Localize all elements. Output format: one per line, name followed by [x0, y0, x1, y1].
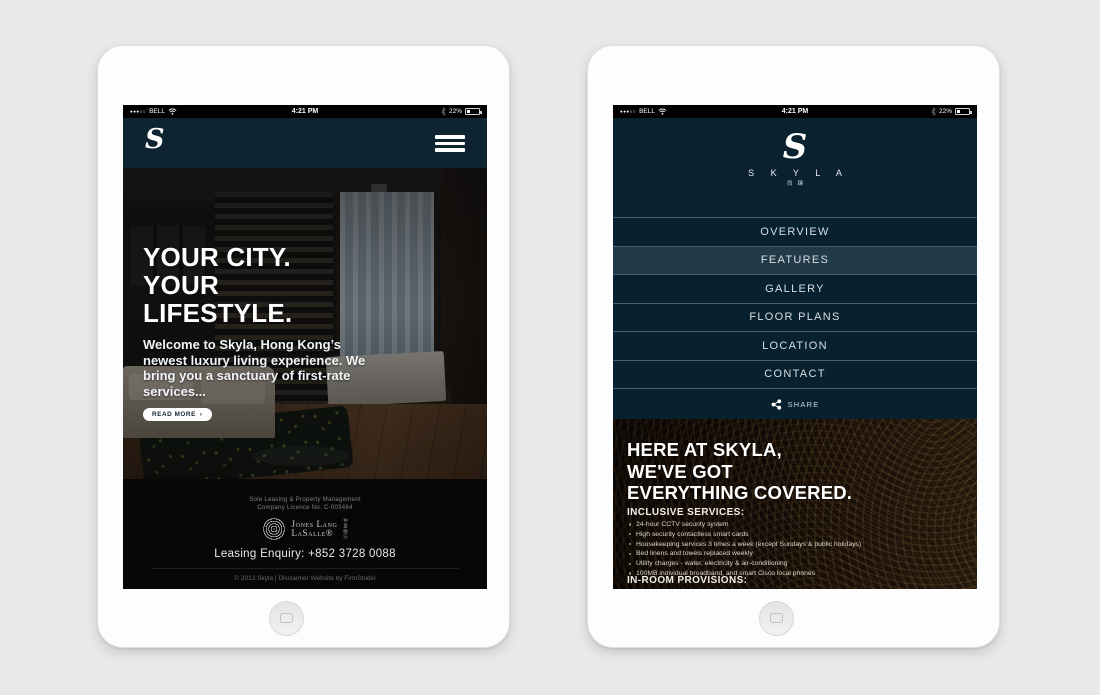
skyla-logo-mark: S [613, 129, 977, 165]
features-heading-line: EVERYTHING COVERED. [627, 482, 852, 504]
in-room-provisions-title: IN-ROOM PROVISIONS: [627, 575, 747, 586]
skyla-chinese-name: 尚臻 [613, 179, 977, 187]
footer-licence-line: Company Licence No. C-003464 [123, 503, 487, 511]
left-screen: ●●●○○ BELL 4:21 PM 22% S [123, 105, 487, 589]
right-screen: ●●●○○ BELL 4:21 PM 22% S S K Y L [613, 105, 977, 589]
battery-icon [955, 108, 970, 115]
menu-item-overview[interactable]: OVERVIEW [613, 217, 977, 246]
jll-wordmark: Jones Lang LaSalle® [292, 520, 338, 539]
hero-copy: YOUR CITY. YOUR LIFESTYLE. Welcome to Sk… [143, 243, 393, 421]
service-item: Utility charges - water, electricity & a… [629, 560, 861, 567]
site-header: S [123, 118, 487, 168]
features-heading-line: HERE AT SKYLA, [627, 439, 852, 461]
share-label: SHARE [788, 400, 820, 409]
left-tablet-frame: ●●●○○ BELL 4:21 PM 22% S [97, 45, 510, 648]
nav-menu: OVERVIEW FEATURES GALLERY FLOOR PLANS LO… [613, 217, 977, 388]
status-bar: ●●●○○ BELL 4:21 PM 22% [613, 105, 977, 118]
share-icon [771, 399, 782, 410]
read-more-button[interactable]: READ MORE› [143, 408, 212, 421]
home-button[interactable] [269, 601, 304, 636]
footer-divider [151, 568, 459, 569]
inclusive-services-title: INCLUSIVE SERVICES: [627, 507, 744, 518]
menu-item-features[interactable]: FEATURES [613, 246, 977, 275]
leasing-enquiry-phone[interactable]: Leasing Enquiry: +852 3728 0088 [123, 548, 487, 560]
chevron-right-icon: › [200, 411, 203, 418]
jll-line2: LaSalle® [292, 529, 338, 539]
hero-title-line: YOUR [143, 271, 393, 299]
hero-title: YOUR CITY. YOUR LIFESTYLE. [143, 243, 393, 327]
skyla-logo-mark[interactable]: S [145, 124, 165, 155]
menu-logo-panel: S S K Y L A 尚臻 [613, 118, 977, 217]
site-footer: Sole Leasing & Property Management Compa… [123, 479, 487, 589]
jll-chinese-text: 仲量聯行 [343, 518, 348, 540]
inclusive-services-list: 24-hour CCTV security system High securi… [629, 521, 861, 580]
copyright-line: © 2013 Skyla | Disclaimer Website by Fir… [123, 575, 487, 582]
clock: 4:21 PM [613, 108, 977, 115]
hero-title-line: LIFESTYLE. [143, 299, 393, 327]
menu-item-location[interactable]: LOCATION [613, 331, 977, 360]
jones-lang-lasalle-logo: Jones Lang LaSalle® 仲量聯行 [123, 517, 487, 541]
hero-description: Welcome to Skyla, Hong Kong’s newest lux… [143, 337, 375, 399]
features-heading: HERE AT SKYLA, WE'VE GOT EVERYTHING COVE… [627, 439, 852, 504]
read-more-label: READ MORE [152, 411, 196, 418]
hero-carousel-slide: YOUR CITY. YOUR LIFESTYLE. Welcome to Sk… [123, 168, 487, 479]
features-section: HERE AT SKYLA, WE'VE GOT EVERYTHING COVE… [613, 419, 977, 589]
skyla-wordmark: S K Y L A [613, 168, 977, 178]
service-item: Housekeeping services 3 times a week (ex… [629, 541, 861, 548]
menu-item-floor-plans[interactable]: FLOOR PLANS [613, 303, 977, 332]
hero-title-line: YOUR CITY. [143, 243, 393, 271]
clock: 4:21 PM [123, 108, 487, 115]
share-button[interactable]: SHARE [613, 388, 977, 419]
features-heading-line: WE'VE GOT [627, 461, 852, 483]
mockup-stage: ●●●○○ BELL 4:21 PM 22% S [0, 0, 1100, 695]
jll-rings-icon [262, 517, 286, 541]
home-button[interactable] [759, 601, 794, 636]
footer-management-line: Sole Leasing & Property Management [123, 479, 487, 503]
service-item: 24-hour CCTV security system [629, 521, 861, 528]
battery-icon [465, 108, 480, 115]
status-bar: ●●●○○ BELL 4:21 PM 22% [123, 105, 487, 118]
menu-item-gallery[interactable]: GALLERY [613, 274, 977, 303]
service-item: High security contactless smart cards [629, 531, 861, 538]
menu-item-contact[interactable]: CONTACT [613, 360, 977, 389]
right-tablet-frame: ●●●○○ BELL 4:21 PM 22% S S K Y L [587, 45, 1000, 648]
hamburger-menu-icon[interactable] [435, 135, 465, 152]
service-item: Bed linens and towels replaced weekly [629, 550, 861, 557]
